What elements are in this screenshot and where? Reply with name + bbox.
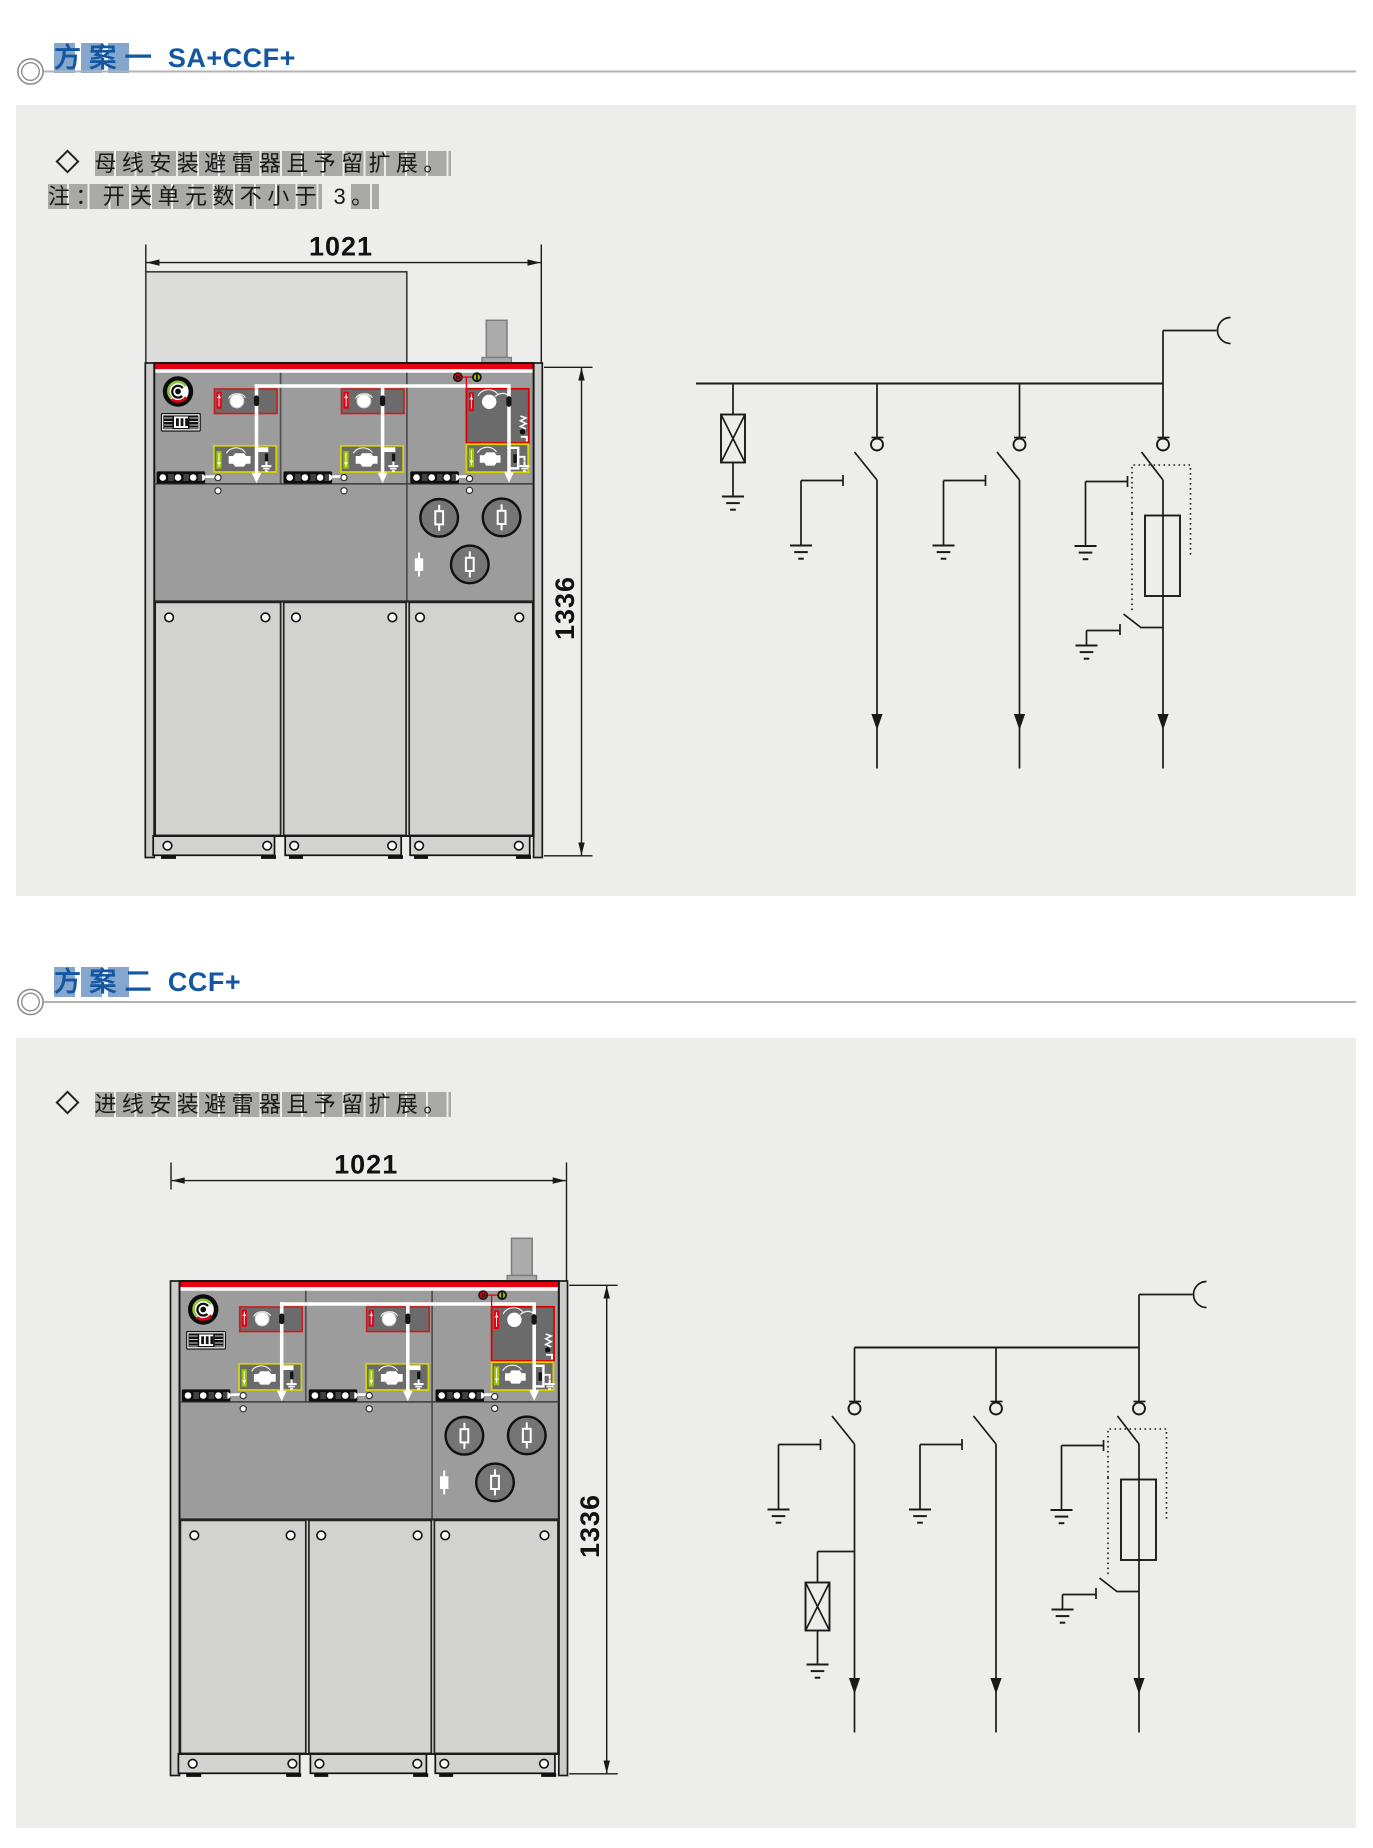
svg-text:1021: 1021 bbox=[309, 232, 373, 262]
svg-text:1336: 1336 bbox=[550, 576, 580, 640]
svg-text:1336: 1336 bbox=[575, 1494, 605, 1558]
